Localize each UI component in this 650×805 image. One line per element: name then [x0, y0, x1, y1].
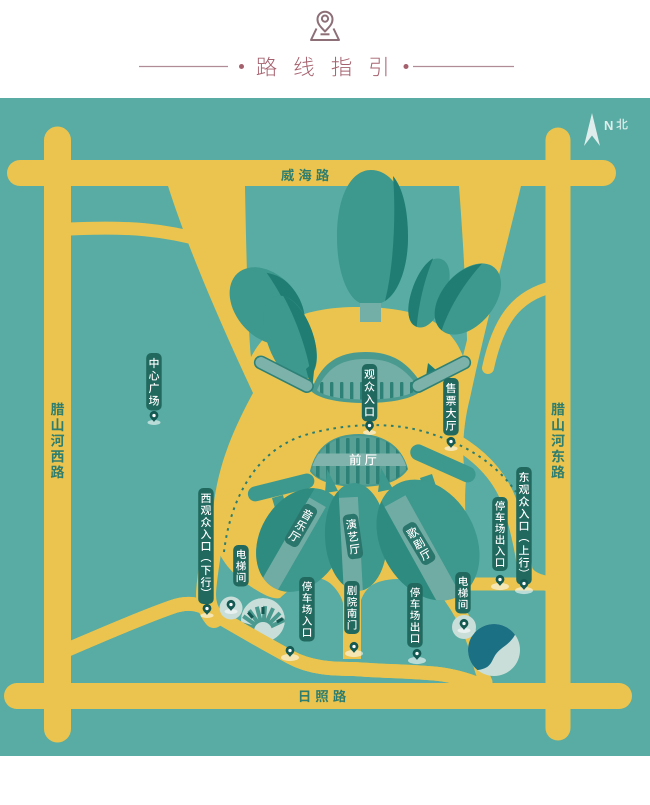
svg-text:N: N: [604, 118, 613, 133]
